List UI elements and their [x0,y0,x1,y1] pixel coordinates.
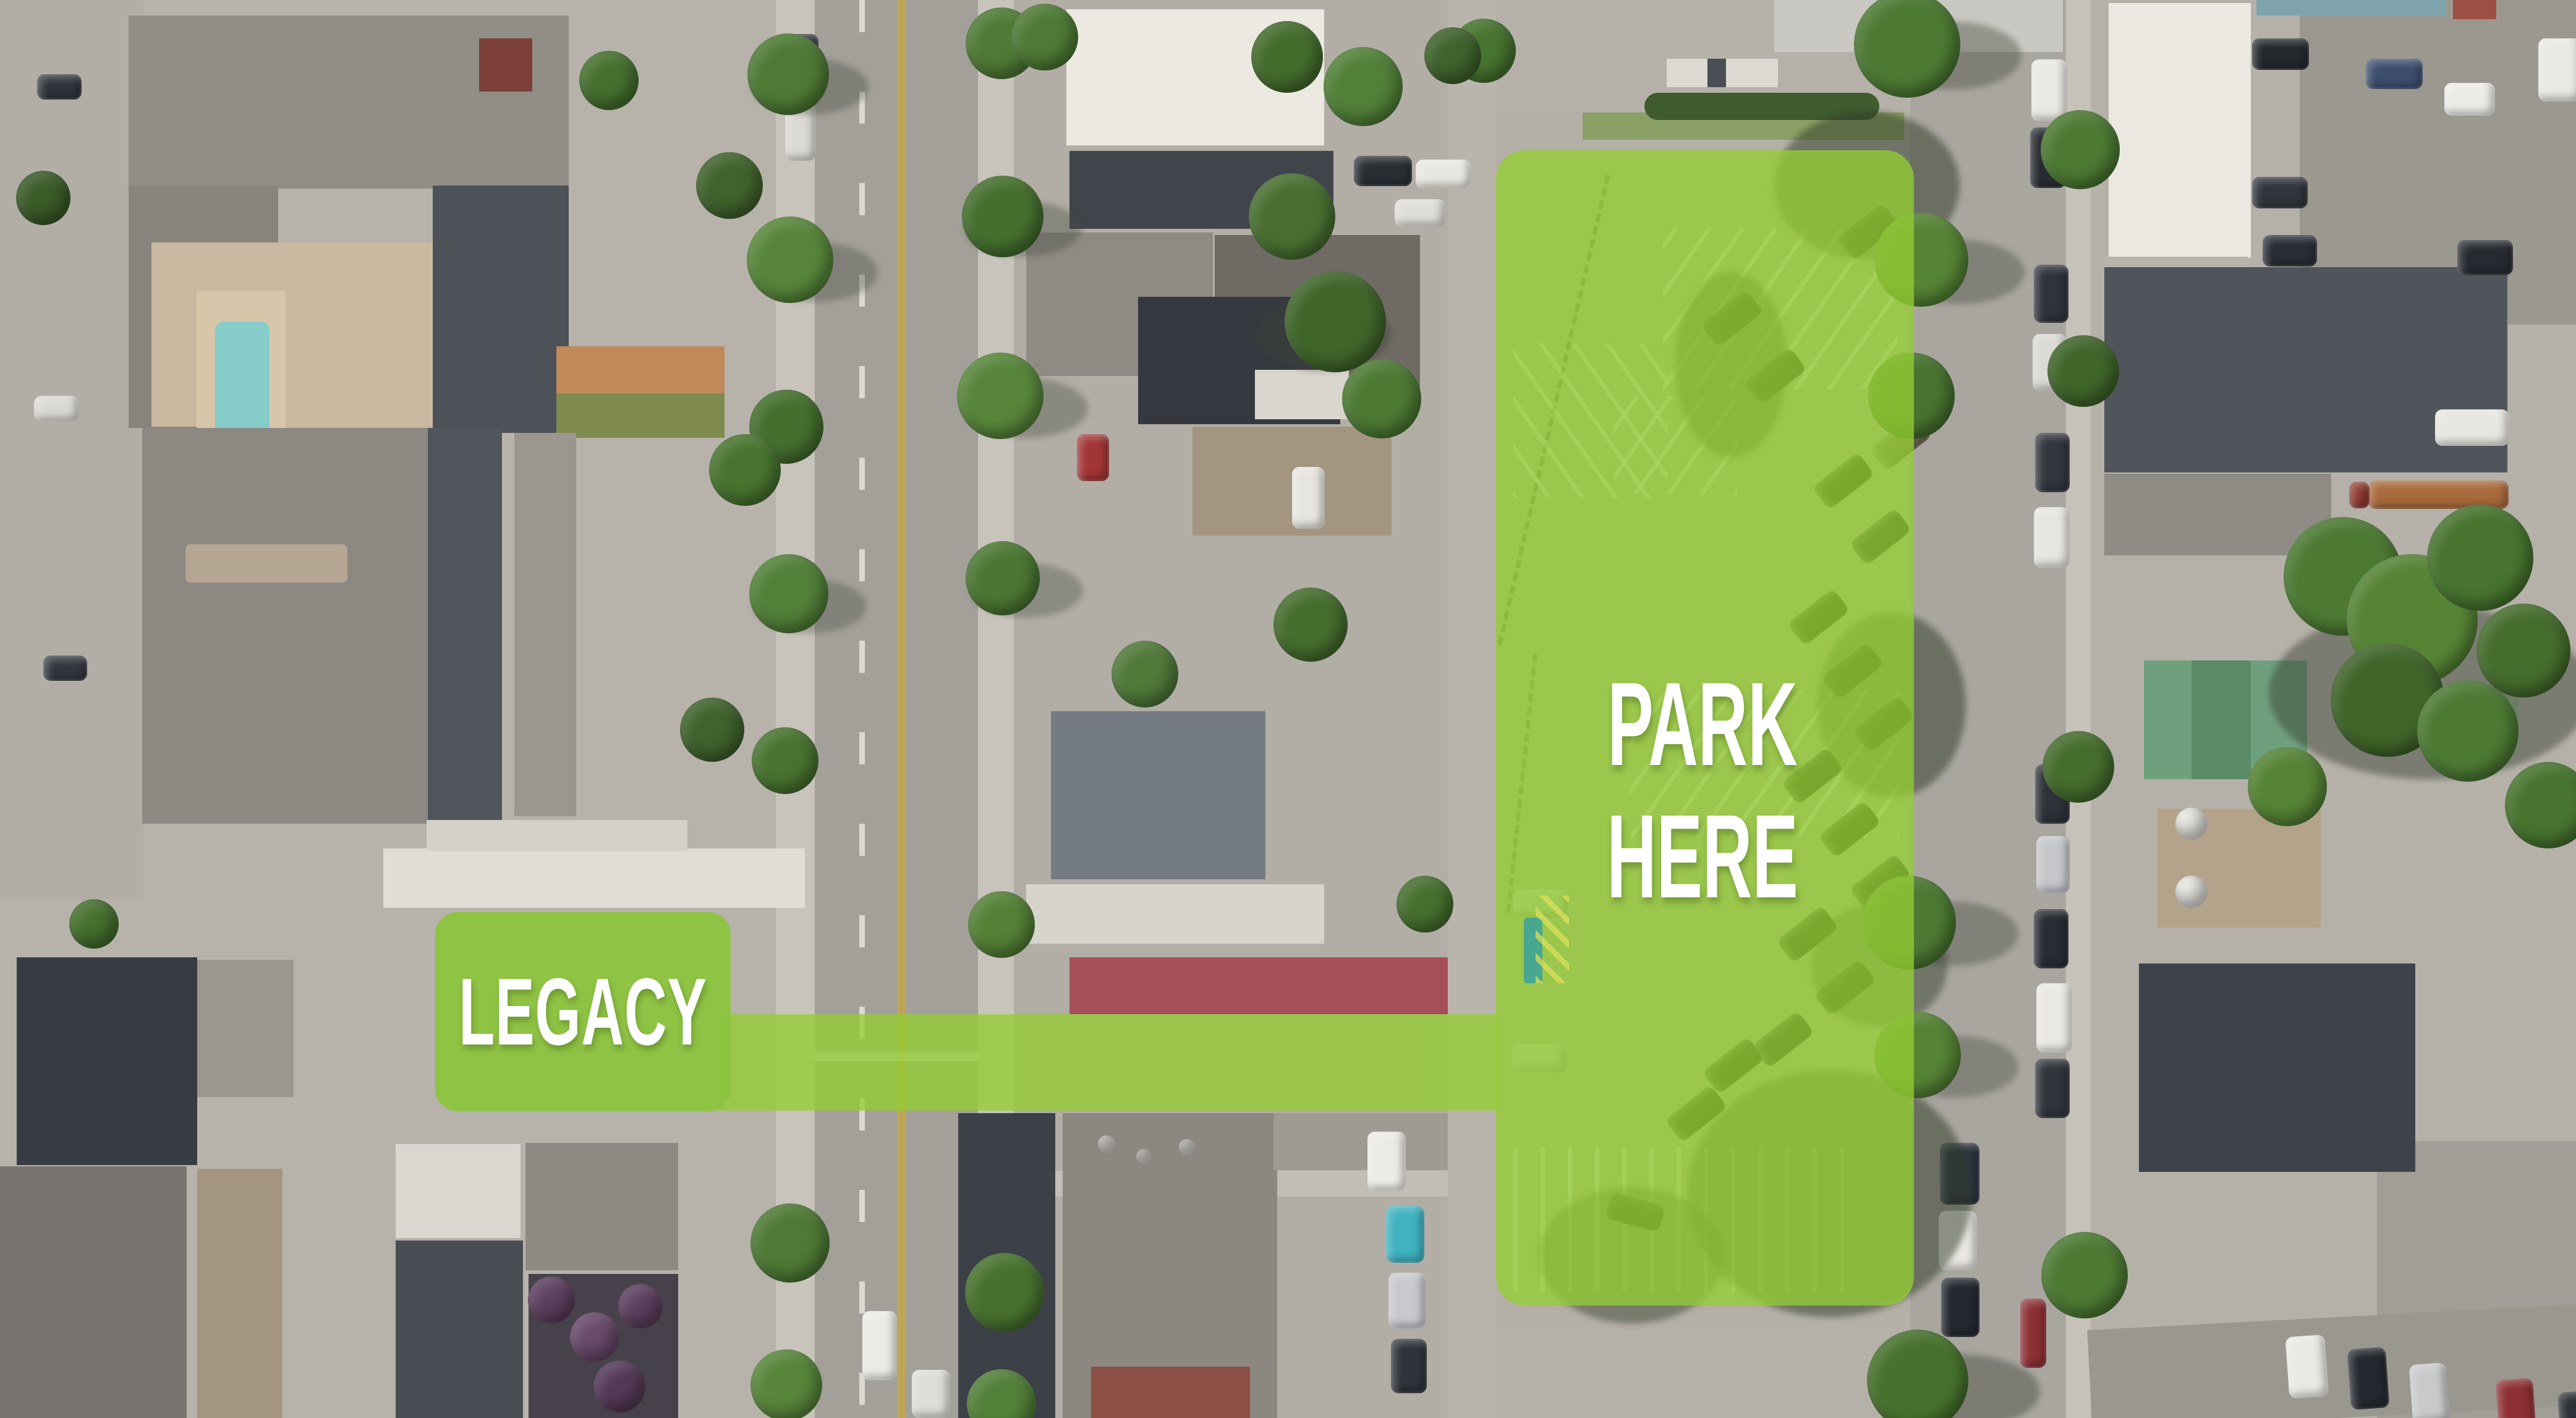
legacy-location-label: LEGACY [435,912,731,1111]
park-here-label: PARK HERE [1559,658,1846,923]
legacy-label-text: LEGACY [459,957,707,1067]
aerial-map: LEGACY PARK HERE [0,0,2576,1418]
park-here-line2: HERE [1559,790,1846,923]
route-highlight-band [717,1014,1497,1111]
annotation-layer: LEGACY PARK HERE [0,0,2576,1418]
park-here-line1: PARK [1559,658,1846,790]
